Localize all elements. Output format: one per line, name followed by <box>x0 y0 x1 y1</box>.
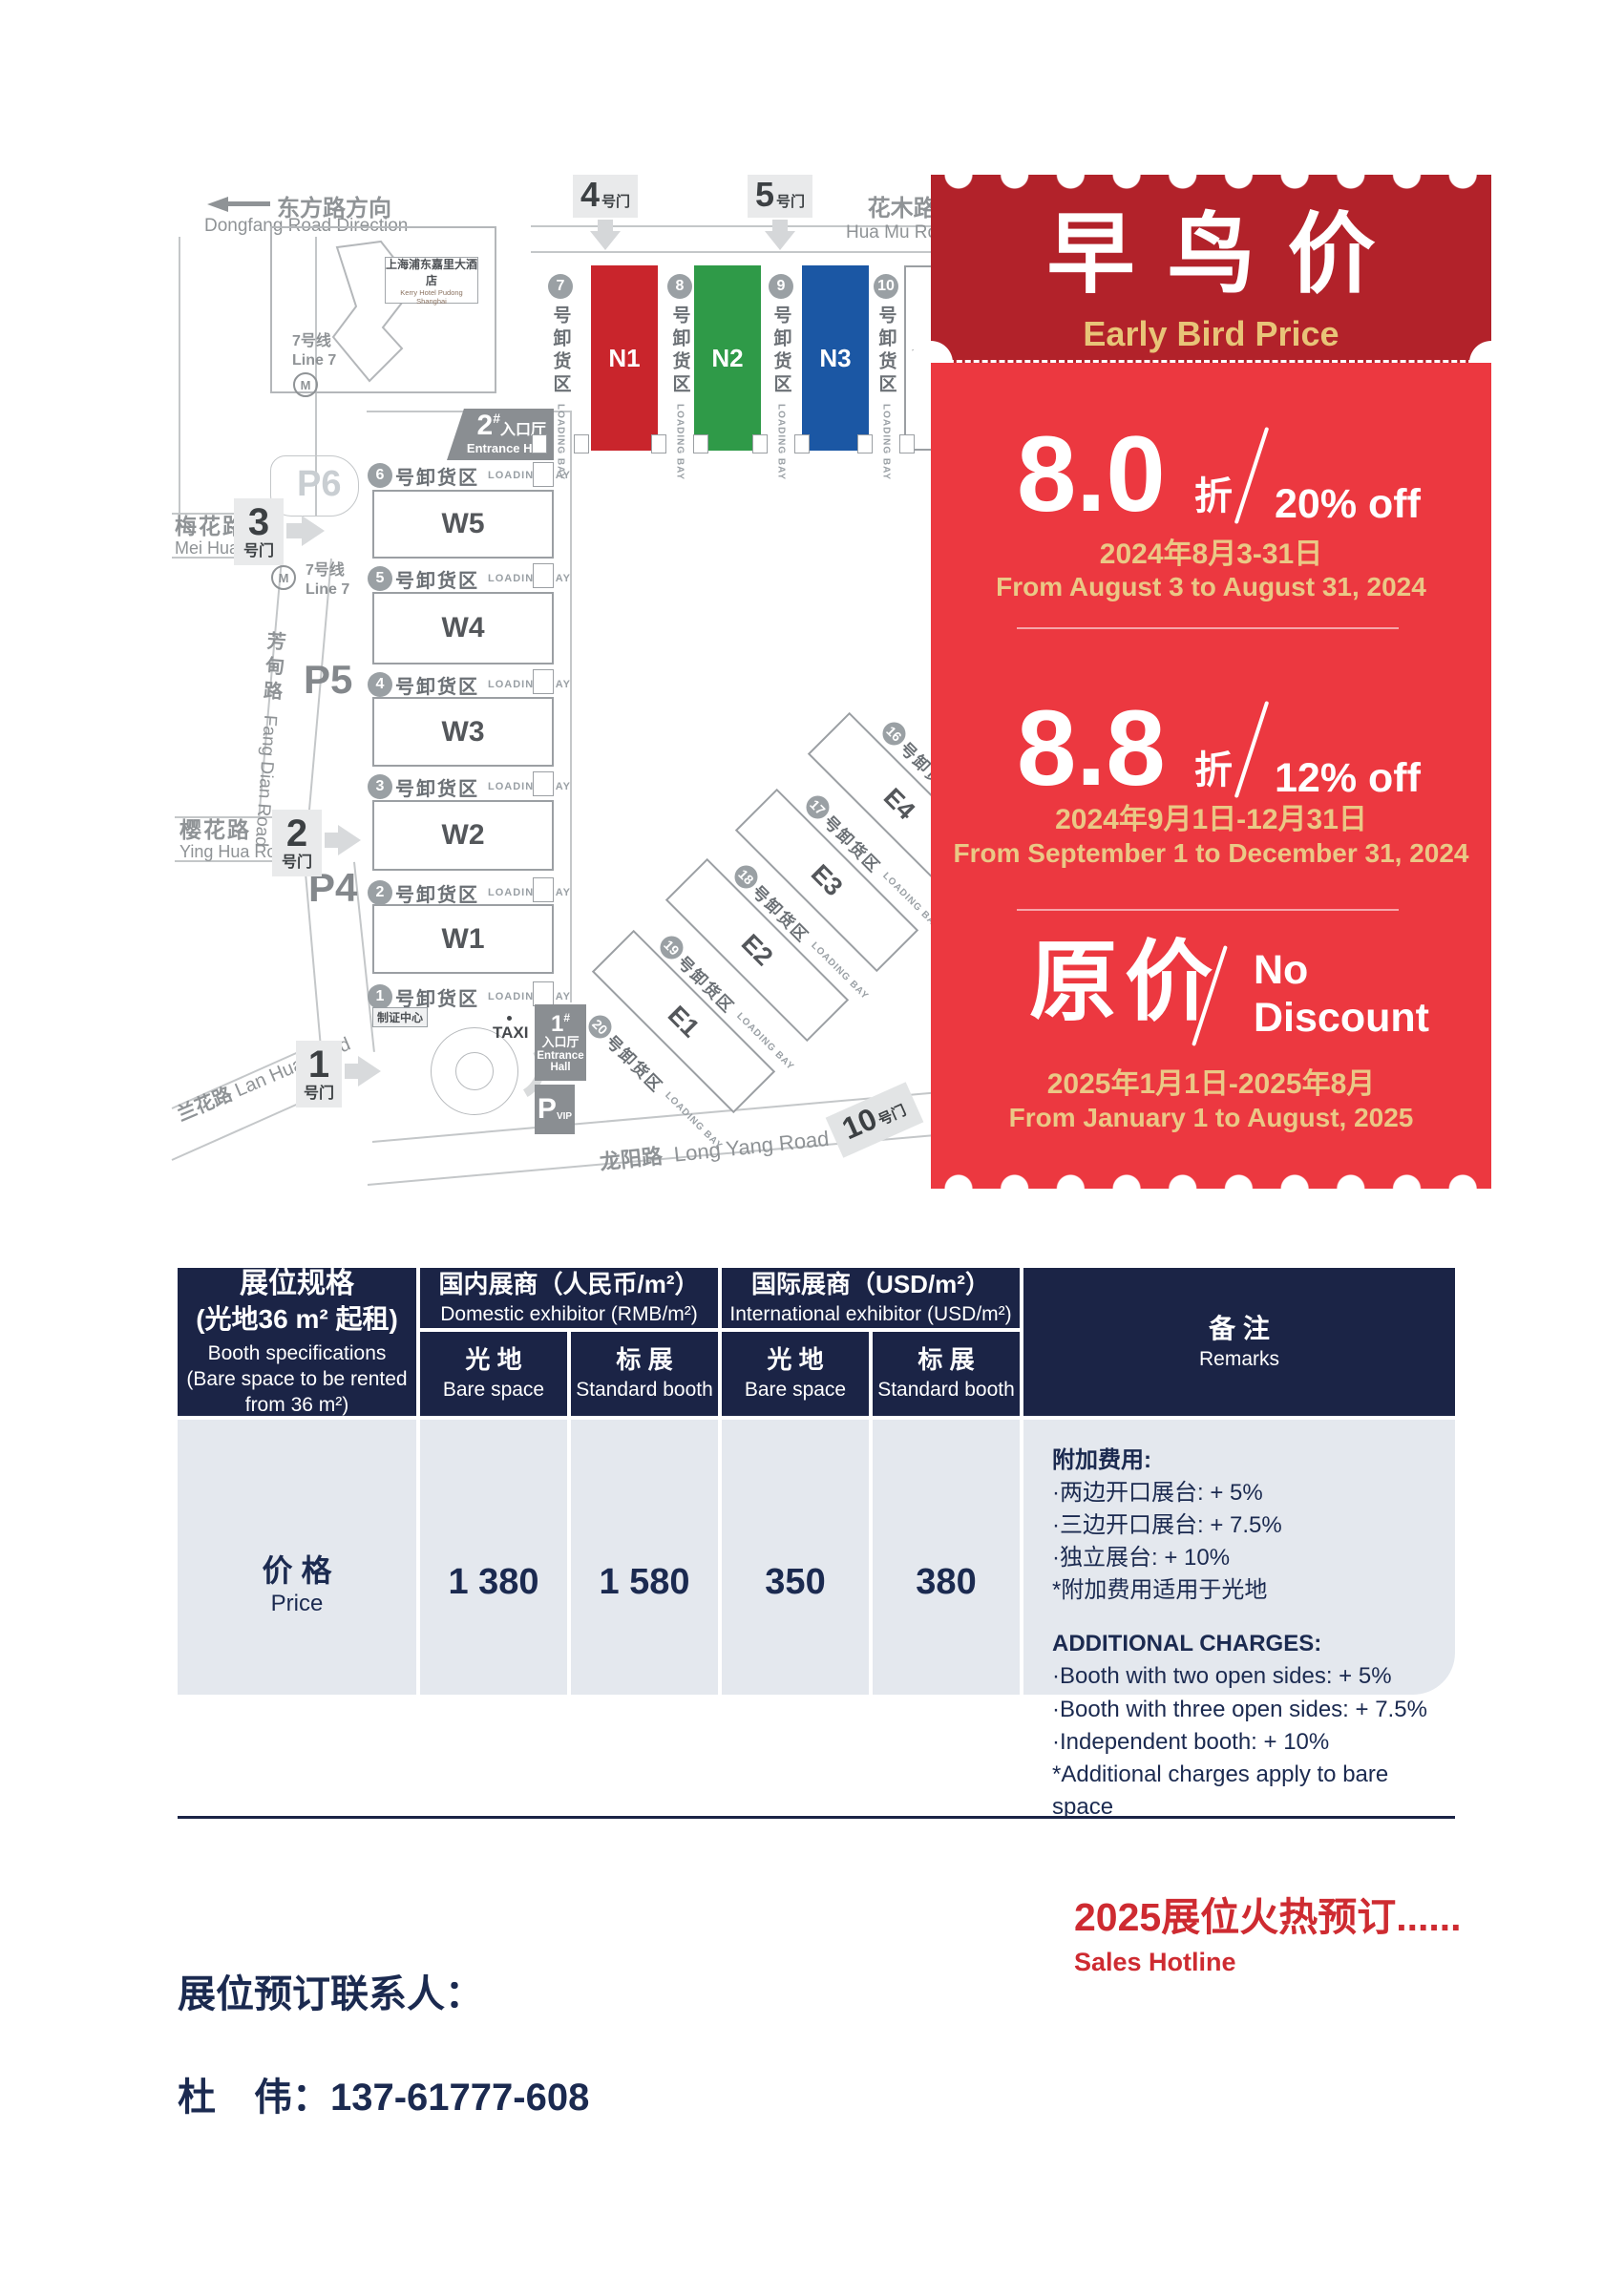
hall-e4-label: E4 <box>877 782 920 825</box>
intl-std-cn: 标 展 <box>917 1344 974 1377</box>
intl-std-en: Standard booth <box>877 1377 1015 1403</box>
bay-5-en: LOADING BAY <box>488 573 571 584</box>
dock-notch <box>693 434 708 453</box>
hall-w4: W4 <box>372 592 554 664</box>
value-domestic-standard: 1 580 <box>599 1562 689 1603</box>
gate-1: 1 号门 <box>296 1041 342 1107</box>
hall-n2-label: N2 <box>711 344 743 373</box>
bay-2-cn: 号卸货区 <box>395 879 479 907</box>
tier2-value: 8.8 <box>1017 695 1166 802</box>
bay-3-number: 3 <box>368 774 392 799</box>
gate-5-arrow-stem <box>772 220 788 231</box>
bay-9-cn: 号卸货区 <box>769 306 794 397</box>
price-label-cn: 价 格 <box>263 1547 332 1591</box>
bay-7-number: 7 <box>548 274 573 299</box>
hotline-subtitle: Sales Hotline <box>1074 1948 1462 1977</box>
entrance1-cn: 入口厅 <box>541 1036 579 1049</box>
tier2-slash <box>1234 701 1270 798</box>
hall-n1-label: N1 <box>608 344 640 373</box>
tier2-date-en: From September 1 to December 31, 2024 <box>931 837 1491 870</box>
bay-4-cn: 号卸货区 <box>395 671 479 699</box>
bay-8-en: LOADING BAY <box>675 404 685 480</box>
hall-w2: W2 <box>372 800 554 871</box>
hall-w3: W3 <box>372 697 554 767</box>
gate-10-number: 10 <box>837 1101 883 1147</box>
bay-10-en: LOADING BAY <box>881 404 892 480</box>
price-domestic-bare: 1 380 <box>420 1420 567 1695</box>
footer-divider <box>178 1816 1455 1819</box>
domestic-group-header: 国内展商（人民币/m²） Domestic exhibitor (RMB/m²) <box>420 1268 718 1328</box>
bay-5-number: 5 <box>368 566 392 591</box>
price-intl-bare: 350 <box>722 1420 869 1695</box>
bay-9-number: 9 <box>769 274 793 299</box>
entrance1-en1: Entrance <box>537 1050 583 1062</box>
dock-notch <box>533 462 554 487</box>
remark-cn-3: ·独立展台: + 10% <box>1052 1542 1230 1574</box>
tier3-date-cn: 2025年1月1日-2025年8月 <box>931 1067 1491 1102</box>
taxi-dot <box>507 1016 512 1021</box>
line7-cn: 7号线 <box>292 332 336 351</box>
gate-2: 2 号门 <box>272 810 322 876</box>
dock-notch <box>533 981 554 1006</box>
gate-1-suffix: 号门 <box>304 1086 334 1102</box>
dom-std-cn: 标 展 <box>616 1344 672 1377</box>
bay-10-cn: 号卸货区 <box>874 306 899 397</box>
bay-9-en: LOADING BAY <box>776 404 787 480</box>
fangdian-road-label: 芳甸路 Fang Dian Road <box>238 630 289 975</box>
remark-en-0: ADDITIONAL CHARGES: <box>1052 1628 1321 1660</box>
gate-1-arrow-icon <box>358 1056 381 1086</box>
gate-10: 10 号门 <box>826 1082 924 1157</box>
gate-3-arrow-stem <box>286 523 302 538</box>
line7-en: Line 7 <box>292 351 336 370</box>
dock-notch <box>533 877 554 902</box>
loading-bay-8: 8 号卸货区 LOADING BAY <box>667 274 692 480</box>
bay-1-en: LOADING BAY <box>488 991 571 1002</box>
gate-3-number: 3 <box>248 503 269 541</box>
gate-5-arrow-icon <box>765 231 795 250</box>
tier3-value: 原价 <box>1029 939 1220 1026</box>
gate-4: 4 号门 <box>573 175 638 218</box>
remark-cn-0: 附加费用: <box>1052 1445 1151 1477</box>
dom-bare-en: Bare space <box>443 1377 544 1403</box>
hotel-name-cn: 上海浦东嘉里大酒店 <box>386 256 477 288</box>
hall-e3-label: E3 <box>805 858 848 901</box>
hall-w4-label: W4 <box>442 612 485 644</box>
line7-left-en: Line 7 <box>306 580 349 600</box>
entrance1-number: 1 <box>551 1011 563 1037</box>
tier1-date-en: From August 3 to August 31, 2024 <box>931 571 1491 603</box>
remark-cn-2: ·三边开口展台: + 7.5% <box>1052 1509 1282 1542</box>
hall-e2-label: E2 <box>735 928 778 971</box>
entrance2-hash: # <box>493 411 500 426</box>
hall-n3: N3 <box>802 265 869 451</box>
bay-10-number: 10 <box>874 274 898 299</box>
col-spec-header: 展位规格 (光地36 m² 起租) Booth specifications (… <box>178 1268 416 1416</box>
hall-w5: W5 <box>372 490 554 559</box>
loading-bay-9: 9 号卸货区 LOADING BAY <box>769 274 793 480</box>
metro-logo-icon: M <box>293 372 318 397</box>
tier3-date-en: From January 1 to August, 2025 <box>931 1102 1491 1134</box>
taxi-label: TAXI <box>493 1023 528 1043</box>
remark-en-4: *Additional charges apply to bare space <box>1052 1759 1445 1824</box>
gate-4-suffix: 号门 <box>601 191 630 211</box>
international-en: International exhibitor (USD/m²) <box>729 1301 1011 1327</box>
bay-2-en: LOADING BAY <box>488 887 571 898</box>
gate-3: 3 号门 <box>234 498 284 565</box>
hotline-title: 2025展位火热预订...... <box>1074 1885 1462 1942</box>
dock-notch <box>857 434 873 453</box>
remarks-cn: 备 注 <box>1209 1312 1270 1346</box>
price-domestic-standard: 1 580 <box>571 1420 718 1695</box>
bay-6-cn: 号卸货区 <box>395 462 479 490</box>
hall-w3-label: W3 <box>442 716 485 749</box>
loading-bay-7: 7 号卸货区 LOADING BAY <box>548 274 573 480</box>
dock-notch <box>752 434 768 453</box>
hotel-name-en: Kerry Hotel Pudong Shanghai <box>386 288 477 306</box>
intl-bare-header: 光 地 Bare space <box>722 1332 869 1416</box>
bay-8-cn: 号卸货区 <box>667 306 693 397</box>
tier3-discount-1: No <box>1254 950 1308 991</box>
spec-en3: from 36 m²) <box>245 1392 349 1418</box>
fangdian-cn: 芳甸路 <box>257 630 289 707</box>
entrance-hall-1: 1# 入口厅 Entrance Hall <box>535 1004 586 1081</box>
intl-bare-en: Bare space <box>745 1377 846 1403</box>
remarks-header: 备 注 Remarks <box>1023 1268 1455 1416</box>
international-cn: 国际展商（USD/m²） <box>751 1269 990 1301</box>
ticket-body: 8.0 折 20% off 2024年8月3-31日 From August 3… <box>931 363 1491 1189</box>
road-line <box>570 411 572 1002</box>
entrance1-en2: Hall <box>550 1062 570 1073</box>
gate-3-arrow-icon <box>302 516 325 546</box>
tier1-discount: 20% off <box>1275 484 1421 525</box>
longyang-cn: 龙阳路 <box>599 1144 664 1174</box>
domestic-en: Domestic exhibitor (RMB/m²) <box>440 1301 698 1327</box>
remark-cn-1: ·两边开口展台: + 5% <box>1052 1477 1263 1509</box>
bay-8-number: 8 <box>667 274 692 299</box>
bay-4-en: LOADING BAY <box>488 679 571 690</box>
gate-2-number: 2 <box>286 814 307 853</box>
parking-p6: P6 <box>297 464 341 505</box>
metro-line7-hotel: 7号线 Line 7 <box>292 332 336 370</box>
tier1-unit: 折 <box>1194 477 1233 516</box>
dock-notch <box>899 434 915 453</box>
dock-notch <box>533 669 554 694</box>
dock-notch <box>532 434 547 453</box>
remark-cn-4: *附加费用适用于光地 <box>1052 1574 1267 1607</box>
bay-1-number: 1 <box>368 984 392 1009</box>
badge-center-box: 制证中心 <box>372 1007 428 1027</box>
remarks-en: Remarks <box>1199 1346 1279 1372</box>
domestic-cn: 国内展商（人民币/m²） <box>438 1269 699 1301</box>
value-domestic-bare: 1 380 <box>448 1562 538 1603</box>
tier1-value: 8.0 <box>1017 421 1166 528</box>
flyer-page: 东方路方向 Dongfang Road Direction 4 号门 5 号门 … <box>0 0 1624 2278</box>
hall-n2: N2 <box>694 265 761 451</box>
badge-center-label: 制证中心 <box>377 1009 423 1025</box>
bay-2-number: 2 <box>368 880 392 905</box>
gate-3-suffix: 号门 <box>243 544 274 559</box>
gate-2-suffix: 号门 <box>282 855 312 871</box>
tier1-slash <box>1234 427 1270 524</box>
bay-5-cn: 号卸货区 <box>395 565 479 593</box>
entrance1-hash: # <box>563 1011 570 1024</box>
value-intl-bare: 350 <box>765 1562 825 1603</box>
gate-1-number: 1 <box>308 1045 329 1084</box>
dongfang-arrow-bar <box>228 201 270 206</box>
tier1-date-cn: 2024年8月3-31日 <box>931 538 1491 572</box>
vip-p: P <box>538 1093 557 1126</box>
gate-10-suffix: 号门 <box>875 1100 909 1129</box>
bay-4-number: 4 <box>368 672 392 697</box>
metro-line7-left: 7号线 Line 7 <box>306 561 349 600</box>
dock-notch <box>794 434 810 453</box>
dock-notch <box>533 771 554 796</box>
bay-6-en: LOADING BAY <box>488 470 571 481</box>
early-bird-ticket: 早鸟价 Early Bird Price 8.0 折 20% off 2024年… <box>931 175 1491 1189</box>
tier2-unit: 折 <box>1194 751 1233 790</box>
price-table: 展位规格 (光地36 m² 起租) Booth specifications (… <box>178 1268 1455 1695</box>
spec-cn2: (光地36 m² 起租) <box>196 1302 398 1337</box>
dock-notch <box>533 563 554 588</box>
gate-5-suffix: 号门 <box>776 191 805 211</box>
hall-w1: W1 <box>372 904 554 974</box>
ticket-header: 早鸟价 Early Bird Price <box>931 175 1491 363</box>
ticket-divider-2 <box>1017 909 1399 911</box>
remark-en-2: ·Booth with three open sides: + 7.5% <box>1052 1694 1427 1726</box>
dom-std-en: Standard booth <box>576 1377 713 1403</box>
price-label-cell: 价 格 Price <box>178 1420 416 1695</box>
hotel-label-box: 上海浦东嘉里大酒店 Kerry Hotel Pudong Shanghai <box>385 257 478 304</box>
tier2-discount: 12% off <box>1275 758 1421 799</box>
spec-en1: Booth specifications <box>208 1340 387 1366</box>
bay-6-number: 6 <box>368 463 392 488</box>
gate-5: 5 号门 <box>748 175 812 218</box>
hotline-block: 2025展位火热预订...... Sales Hotline <box>1074 1885 1462 1977</box>
hall-n3-label: N3 <box>819 344 851 373</box>
international-group-header: 国际展商（USD/m²） International exhibitor (US… <box>722 1268 1020 1328</box>
gate-2-arrow-stem <box>325 833 338 848</box>
hall-w2-label: W2 <box>442 819 485 852</box>
hall-w5-label: W5 <box>442 508 485 540</box>
spec-en2: (Bare space to be rented <box>186 1366 407 1392</box>
domestic-standard-header: 标 展 Standard booth <box>571 1332 718 1416</box>
ticket-divider-1 <box>1017 627 1399 629</box>
lanhua-cn: 兰花路 <box>175 1084 236 1126</box>
price-intl-standard: 380 <box>873 1420 1020 1695</box>
remarks-cell: 附加费用: ·两边开口展台: + 5% ·三边开口展台: + 7.5% ·独立展… <box>1023 1420 1455 1695</box>
vip-sub: VIP <box>557 1111 572 1122</box>
contact-label: 展位预订联系人： <box>178 1963 483 2018</box>
ticket-scallop-top <box>931 175 1491 203</box>
gate-4-arrow-stem <box>598 220 613 231</box>
line7-left-cn: 7号线 <box>306 561 349 580</box>
tier3-discount-2: Discount <box>1254 998 1429 1039</box>
bay-3-cn: 号卸货区 <box>395 773 479 801</box>
bay-7-cn: 号卸货区 <box>548 306 574 397</box>
dongfang-arrow-icon <box>207 197 228 212</box>
domestic-bare-header: 光 地 Bare space <box>420 1332 567 1416</box>
metro-logo-icon-left: M <box>271 565 296 590</box>
metro-logo-glyph: M <box>301 378 311 392</box>
ticket-title-en: Early Bird Price <box>931 314 1491 354</box>
hall-w1-label: W1 <box>442 923 485 956</box>
dom-bare-cn: 光 地 <box>465 1344 521 1377</box>
ticket-scallop-bottom <box>931 1160 1491 1189</box>
hall-n1: N1 <box>591 265 658 451</box>
dock-notch <box>651 434 666 453</box>
gate-5-number: 5 <box>755 176 774 214</box>
tier2-date-cn: 2024年9月1日-12月31日 <box>931 803 1491 837</box>
hall-e1-label: E1 <box>662 1000 705 1043</box>
gate-4-number: 4 <box>580 176 600 214</box>
road-line <box>531 251 943 253</box>
gate-4-arrow-icon <box>590 231 621 250</box>
contact-phone: 杜 伟：137-61777-608 <box>178 2066 589 2121</box>
entrance2-number: 2 <box>477 410 494 441</box>
dock-notch <box>574 434 589 453</box>
bay-3-en: LOADING BAY <box>488 781 571 792</box>
remark-en-1: ·Booth with two open sides: + 5% <box>1052 1660 1392 1693</box>
gate-1-arrow-stem <box>345 1064 358 1079</box>
gate-2-arrow-icon <box>338 825 361 855</box>
intl-bare-cn: 光 地 <box>767 1344 823 1377</box>
loading-bay-10: 10 号卸货区 LOADING BAY <box>874 274 898 480</box>
ticket-title-cn: 早鸟价 <box>931 211 1491 299</box>
parking-p5: P5 <box>304 657 352 703</box>
intl-standard-header: 标 展 Standard booth <box>873 1332 1020 1416</box>
spec-cn1: 展位规格 <box>240 1265 354 1302</box>
vip-parking: PVIP <box>535 1085 575 1134</box>
price-label-en: Price <box>271 1591 324 1617</box>
value-intl-standard: 380 <box>916 1562 976 1603</box>
road-line <box>179 237 180 516</box>
metro-logo-glyph: M <box>279 571 289 585</box>
remark-en-3: ·Independent booth: + 10% <box>1052 1726 1329 1759</box>
